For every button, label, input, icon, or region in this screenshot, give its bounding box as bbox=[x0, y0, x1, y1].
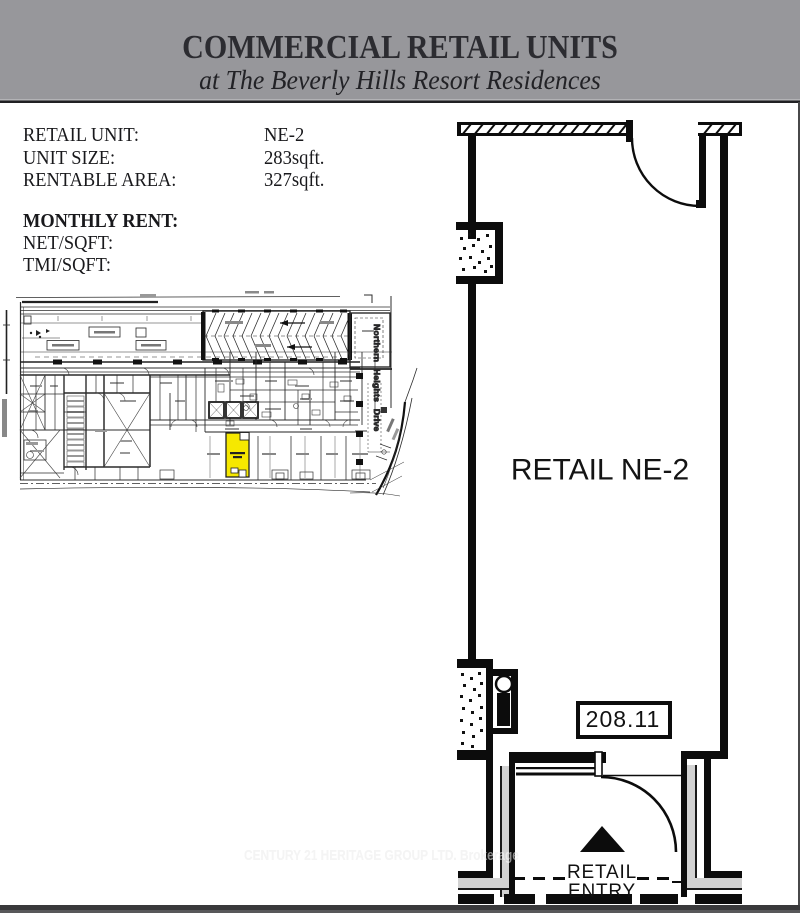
svg-text:208.11: 208.11 bbox=[586, 706, 661, 732]
svg-text:ENTRY: ENTRY bbox=[568, 881, 636, 902]
svg-text:Northern Heights Drive: Northern Heights Drive bbox=[372, 324, 382, 432]
svg-text:RETAIL NE-2: RETAIL NE-2 bbox=[511, 454, 689, 487]
